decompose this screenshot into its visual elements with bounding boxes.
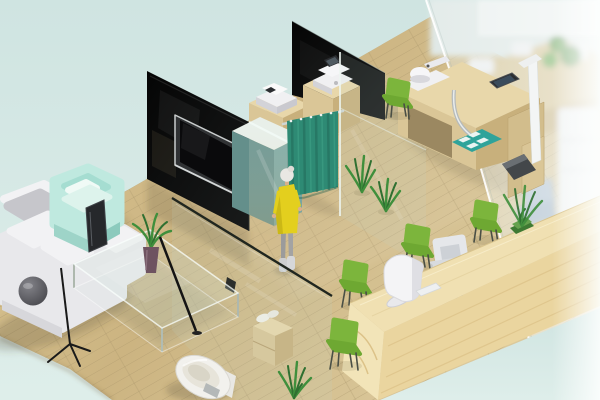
screenshot-canvas	[0, 0, 600, 400]
right-edge-wash	[552, 0, 600, 400]
curtain-fabric	[287, 111, 338, 197]
mint-armchair	[54, 168, 120, 252]
waiting-chair	[384, 80, 411, 120]
client-chair-4	[472, 202, 500, 245]
laptop-screen	[86, 200, 107, 252]
top-right-wash	[478, 0, 600, 36]
isometric-office-render	[0, 0, 600, 400]
lamp-head-sphere	[19, 277, 48, 306]
